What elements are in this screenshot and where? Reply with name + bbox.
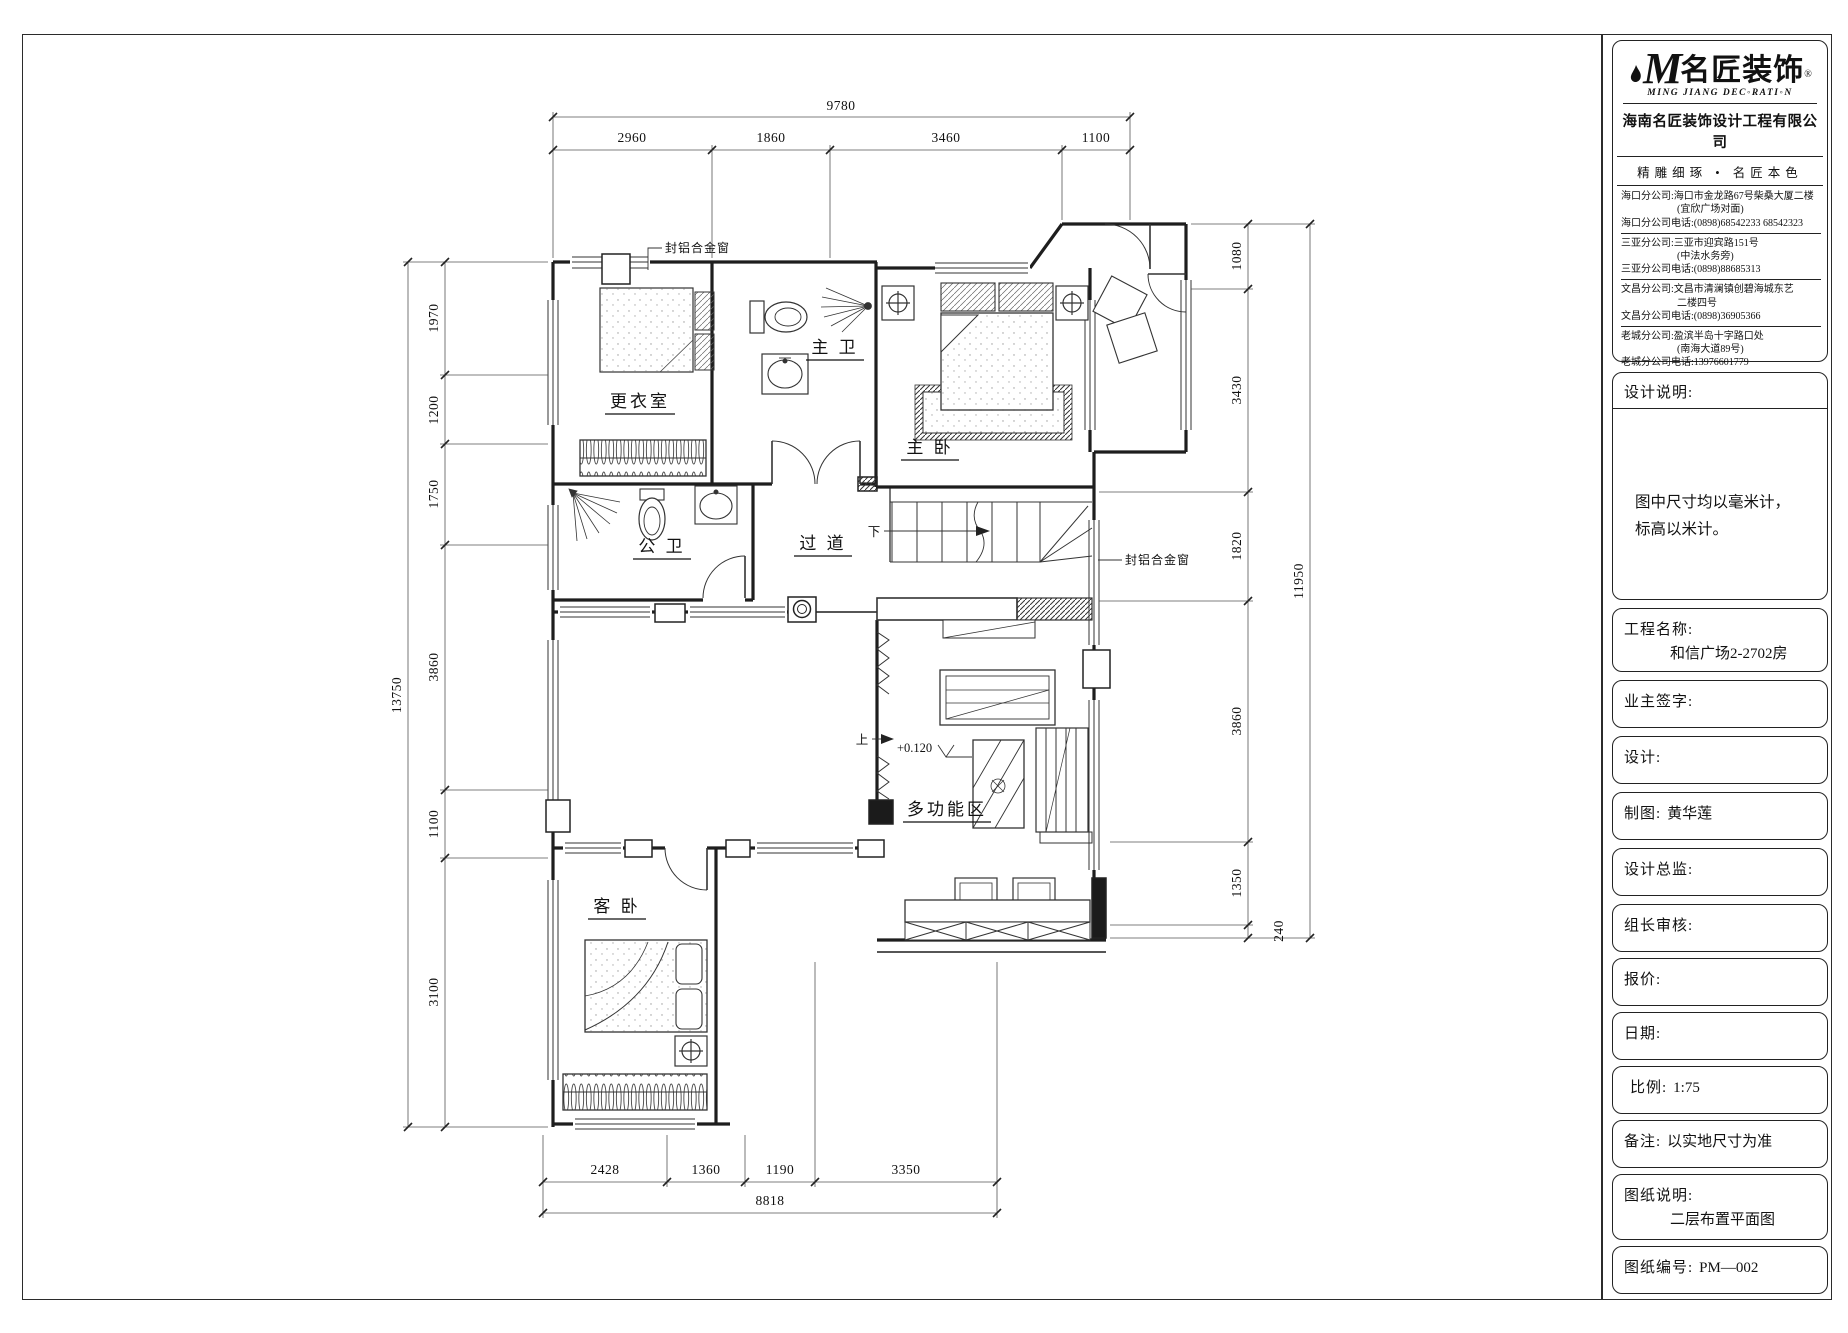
door-guest-bed xyxy=(665,848,707,890)
label-dressing: 更衣室 xyxy=(610,392,670,411)
dim-bottom-3: 3350 xyxy=(892,1162,921,1177)
field-value: 以实地尺寸为准 xyxy=(1667,1134,1772,1150)
shower-rays xyxy=(569,489,620,541)
logo-name: 名匠装饰 xyxy=(1680,56,1804,86)
dim-right-3: 3860 xyxy=(1229,707,1244,736)
branch-line: 二楼四号 xyxy=(1621,297,1821,310)
dim-left-overall: 13750 xyxy=(389,677,404,713)
hatched-beam xyxy=(1017,598,1092,620)
pillow xyxy=(676,944,702,984)
dim-top-1: 1860 xyxy=(757,130,786,145)
dim-top-3: 1100 xyxy=(1082,130,1111,145)
logo-box: M 名匠装饰 ® MING JIANG DEC◦RATI◦N 海南名匠装饰设计工… xyxy=(1612,40,1828,362)
label-shared-bath: 公 卫 xyxy=(638,537,685,556)
zigzag-partition xyxy=(877,756,889,799)
logo: M 名匠装饰 ® xyxy=(1613,41,1827,86)
logo-english: MING JIANG DEC◦RATI◦N xyxy=(1623,88,1817,104)
dim-left-0: 1970 xyxy=(426,304,441,333)
dimensions: 9780 2960 1860 3460 1100 8818 2428 1360 … xyxy=(389,98,1315,1218)
field-sheet-title: 图纸说明:二层布置平面图 xyxy=(1612,1174,1828,1240)
dim-bottom-2: 1190 xyxy=(766,1162,795,1177)
pillow xyxy=(941,283,995,311)
field-value: 和信广场2-2702房 xyxy=(1670,642,1827,663)
branch-list: 海口分公司:海口市金龙路67号柴桑大厦二楼 (宜欣广场对面) 海口分公司电话:(… xyxy=(1613,186,1827,369)
doors xyxy=(665,224,1186,890)
field-designer: 设计: xyxy=(1612,736,1828,784)
structural-column-circle xyxy=(788,597,816,622)
shared-bath xyxy=(569,486,737,541)
field-design-director: 设计总监: xyxy=(1612,848,1828,896)
toilet xyxy=(639,489,665,540)
table xyxy=(940,670,1055,725)
branch-line: 文昌分公司电话:(0898)36905366 xyxy=(1621,310,1821,327)
registered-mark: ® xyxy=(1804,69,1812,80)
field-project-name: 工程名称:和信广场2-2702房 xyxy=(1612,608,1828,672)
field-label: 备注: xyxy=(1624,1134,1661,1150)
field-label: 工程名称: xyxy=(1624,622,1693,638)
field-label: 日期: xyxy=(1624,1026,1661,1042)
branch-line: 三亚分公司电话:(0898)88685313 xyxy=(1621,263,1821,280)
double-door-master-suite xyxy=(772,441,860,484)
stair-up-label: 上 xyxy=(856,733,869,747)
dim-top-overall: 9780 xyxy=(827,98,856,113)
master-bedroom xyxy=(882,283,1088,440)
dim-bottom-overall: 8818 xyxy=(756,1193,785,1208)
branch-line: (宜欣广场对面) xyxy=(1621,203,1821,216)
nightstand-left xyxy=(882,286,914,320)
branch-line: 文昌分公司:文昌市清澜镇创碧海城东艺 xyxy=(1621,283,1821,296)
dressing-room xyxy=(580,288,714,476)
field-label: 图纸说明: xyxy=(1624,1188,1693,1204)
dim-right-overall: 11950 xyxy=(1291,563,1306,599)
design-note-label: 设计说明: xyxy=(1613,373,1827,409)
nightstand xyxy=(675,1036,707,1066)
dim-right-5: 240 xyxy=(1271,920,1286,942)
dim-right-0: 1080 xyxy=(1229,242,1244,271)
company-slogan: 精雕细琢 • 名匠本色 xyxy=(1617,157,1823,186)
field-draftsman: 制图:黄华莲 xyxy=(1612,792,1828,840)
field-label: 设计总监: xyxy=(1624,862,1693,878)
design-note-box: 设计说明: 图中尺寸均以毫米计， 标高以米计。 xyxy=(1612,372,1828,600)
dim-left-2: 1750 xyxy=(426,480,441,509)
stair-down-label: 下 xyxy=(868,525,881,539)
label-corridor: 过 道 xyxy=(799,534,846,553)
title-block: M 名匠装饰 ® MING JIANG DEC◦RATI◦N 海南名匠装饰设计工… xyxy=(1600,0,1848,1333)
balcony-cushions xyxy=(1093,276,1157,363)
dim-left-1: 1200 xyxy=(426,396,441,425)
field-label: 设计: xyxy=(1624,750,1661,766)
field-value: 黄华莲 xyxy=(1667,806,1712,822)
branch-line: 三亚分公司:三亚市迎宾路151号 xyxy=(1621,237,1821,250)
field-label: 组长审核: xyxy=(1624,918,1693,934)
field-label: 报价: xyxy=(1624,972,1661,988)
field-value: PM—002 xyxy=(1699,1260,1758,1276)
field-quotation: 报价: xyxy=(1612,958,1828,1006)
zigzag-partition xyxy=(877,632,889,694)
dim-texts: 9780 2960 1860 3460 1100 8818 2428 1360 … xyxy=(389,98,1306,1208)
bed xyxy=(941,313,1053,410)
branch-line: 老城分公司电话:13976601779 xyxy=(1621,356,1821,369)
field-owner-signature: 业主签字: xyxy=(1612,680,1828,728)
door-balcony-top xyxy=(1105,224,1150,269)
dim-bottom-0: 2428 xyxy=(591,1162,620,1177)
wall-lamp-rays xyxy=(821,288,872,332)
bench-seat xyxy=(905,878,1090,922)
dim-right-4: 1350 xyxy=(1229,869,1244,898)
door-shared-bath xyxy=(703,556,745,598)
sink xyxy=(762,354,808,394)
dim-ticks xyxy=(404,113,1314,1217)
label-multi: 多功能区 xyxy=(907,800,987,819)
field-value: 1:75 xyxy=(1673,1080,1700,1096)
guest-bedroom xyxy=(563,940,707,1110)
alu-window-label-right: 封铝合金窗 xyxy=(1125,552,1190,567)
company-name: 海南名匠装饰设计工程有限公司 xyxy=(1617,104,1823,157)
field-sheet-number: 图纸编号:PM—002 xyxy=(1612,1246,1828,1294)
design-note-line1: 图中尺寸均以毫米计， xyxy=(1635,489,1813,516)
pillow xyxy=(999,283,1053,311)
alu-window-label-top: 封铝合金窗 xyxy=(665,240,730,255)
stairs xyxy=(877,502,1092,638)
branch-line: (中法水务旁) xyxy=(1621,250,1821,263)
drawing-sheet: 更衣室 主 卫 主 卧 公 卫 过 道 客 卧 多功能区 封铝合金窗 封铝合金窗… xyxy=(0,0,1848,1333)
branch-line: (南海大道89号) xyxy=(1621,343,1821,356)
x-fence xyxy=(905,922,1090,940)
label-master-bath: 主 卫 xyxy=(811,338,858,357)
sink xyxy=(695,486,737,524)
dim-right-2: 1820 xyxy=(1229,532,1244,561)
field-label: 图纸编号: xyxy=(1624,1260,1693,1276)
dim-right-1: 3430 xyxy=(1229,376,1244,405)
floor-plan: 更衣室 主 卫 主 卧 公 卫 过 道 客 卧 多功能区 封铝合金窗 封铝合金窗… xyxy=(0,0,1600,1333)
dim-top-2: 3460 xyxy=(932,130,961,145)
branch-line: 海口分公司电话:(0898)68542233 68542323 xyxy=(1621,217,1821,234)
branch-line: 海口分公司:海口市金龙路67号柴桑大厦二楼 xyxy=(1621,190,1821,203)
logo-m: M xyxy=(1643,51,1680,86)
pillow xyxy=(676,989,702,1029)
field-label: 业主签字: xyxy=(1624,694,1693,710)
dim-bottom-1: 1360 xyxy=(692,1162,721,1177)
dim-left-5: 3100 xyxy=(426,978,441,1007)
nightstand-right xyxy=(1056,286,1088,320)
level-label: +0.120 xyxy=(897,741,932,755)
bed xyxy=(585,940,707,1032)
label-guest-bed: 客 卧 xyxy=(593,897,640,916)
branch-line: 老城分公司:盈滨半岛十字路口处 xyxy=(1621,330,1821,343)
design-note-line2: 标高以米计。 xyxy=(1635,516,1813,543)
field-date: 日期: xyxy=(1612,1012,1828,1060)
bookshelf xyxy=(1036,728,1092,843)
dim-left-3: 3860 xyxy=(426,653,441,682)
field-team-review: 组长审核: xyxy=(1612,904,1828,952)
multi-function-room xyxy=(877,632,1092,940)
stair-landing xyxy=(877,598,1017,620)
dim-top-0: 2960 xyxy=(618,130,647,145)
dim-left-4: 1100 xyxy=(426,810,441,839)
field-label: 制图: xyxy=(1624,806,1661,822)
flame-icon xyxy=(1628,64,1643,86)
field-scale: 比例:1:75 xyxy=(1612,1066,1828,1114)
field-remark: 备注:以实地尺寸为准 xyxy=(1612,1120,1828,1168)
label-master-bed: 主 卧 xyxy=(906,438,953,457)
field-label: 比例: xyxy=(1630,1080,1667,1096)
field-value: 二层布置平面图 xyxy=(1670,1208,1827,1229)
toilet xyxy=(750,301,807,333)
